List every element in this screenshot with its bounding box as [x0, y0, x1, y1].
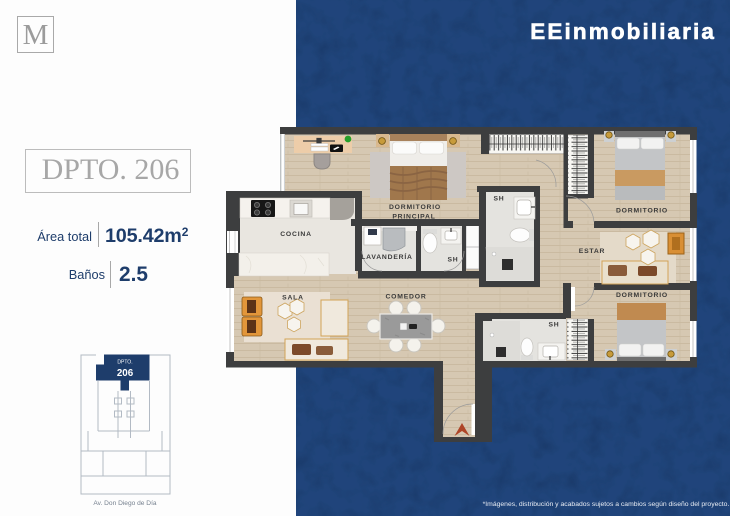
svg-text:SH: SH: [493, 196, 504, 203]
svg-text:DORMITORIO: DORMITORIO: [616, 292, 668, 299]
svg-text:SALA: SALA: [282, 295, 304, 302]
svg-text:SH: SH: [447, 257, 458, 264]
svg-text:DORMITORIO: DORMITORIO: [389, 204, 441, 211]
svg-text:ESTAR: ESTAR: [579, 248, 606, 255]
svg-text:PRINCIPAL: PRINCIPAL: [392, 214, 435, 221]
svg-text:LAVANDERÍA: LAVANDERÍA: [361, 252, 413, 261]
svg-text:DORMITORIO: DORMITORIO: [616, 208, 668, 215]
svg-text:COCINA: COCINA: [280, 231, 312, 238]
svg-text:COMEDOR: COMEDOR: [385, 294, 426, 301]
svg-text:SH: SH: [548, 322, 559, 329]
